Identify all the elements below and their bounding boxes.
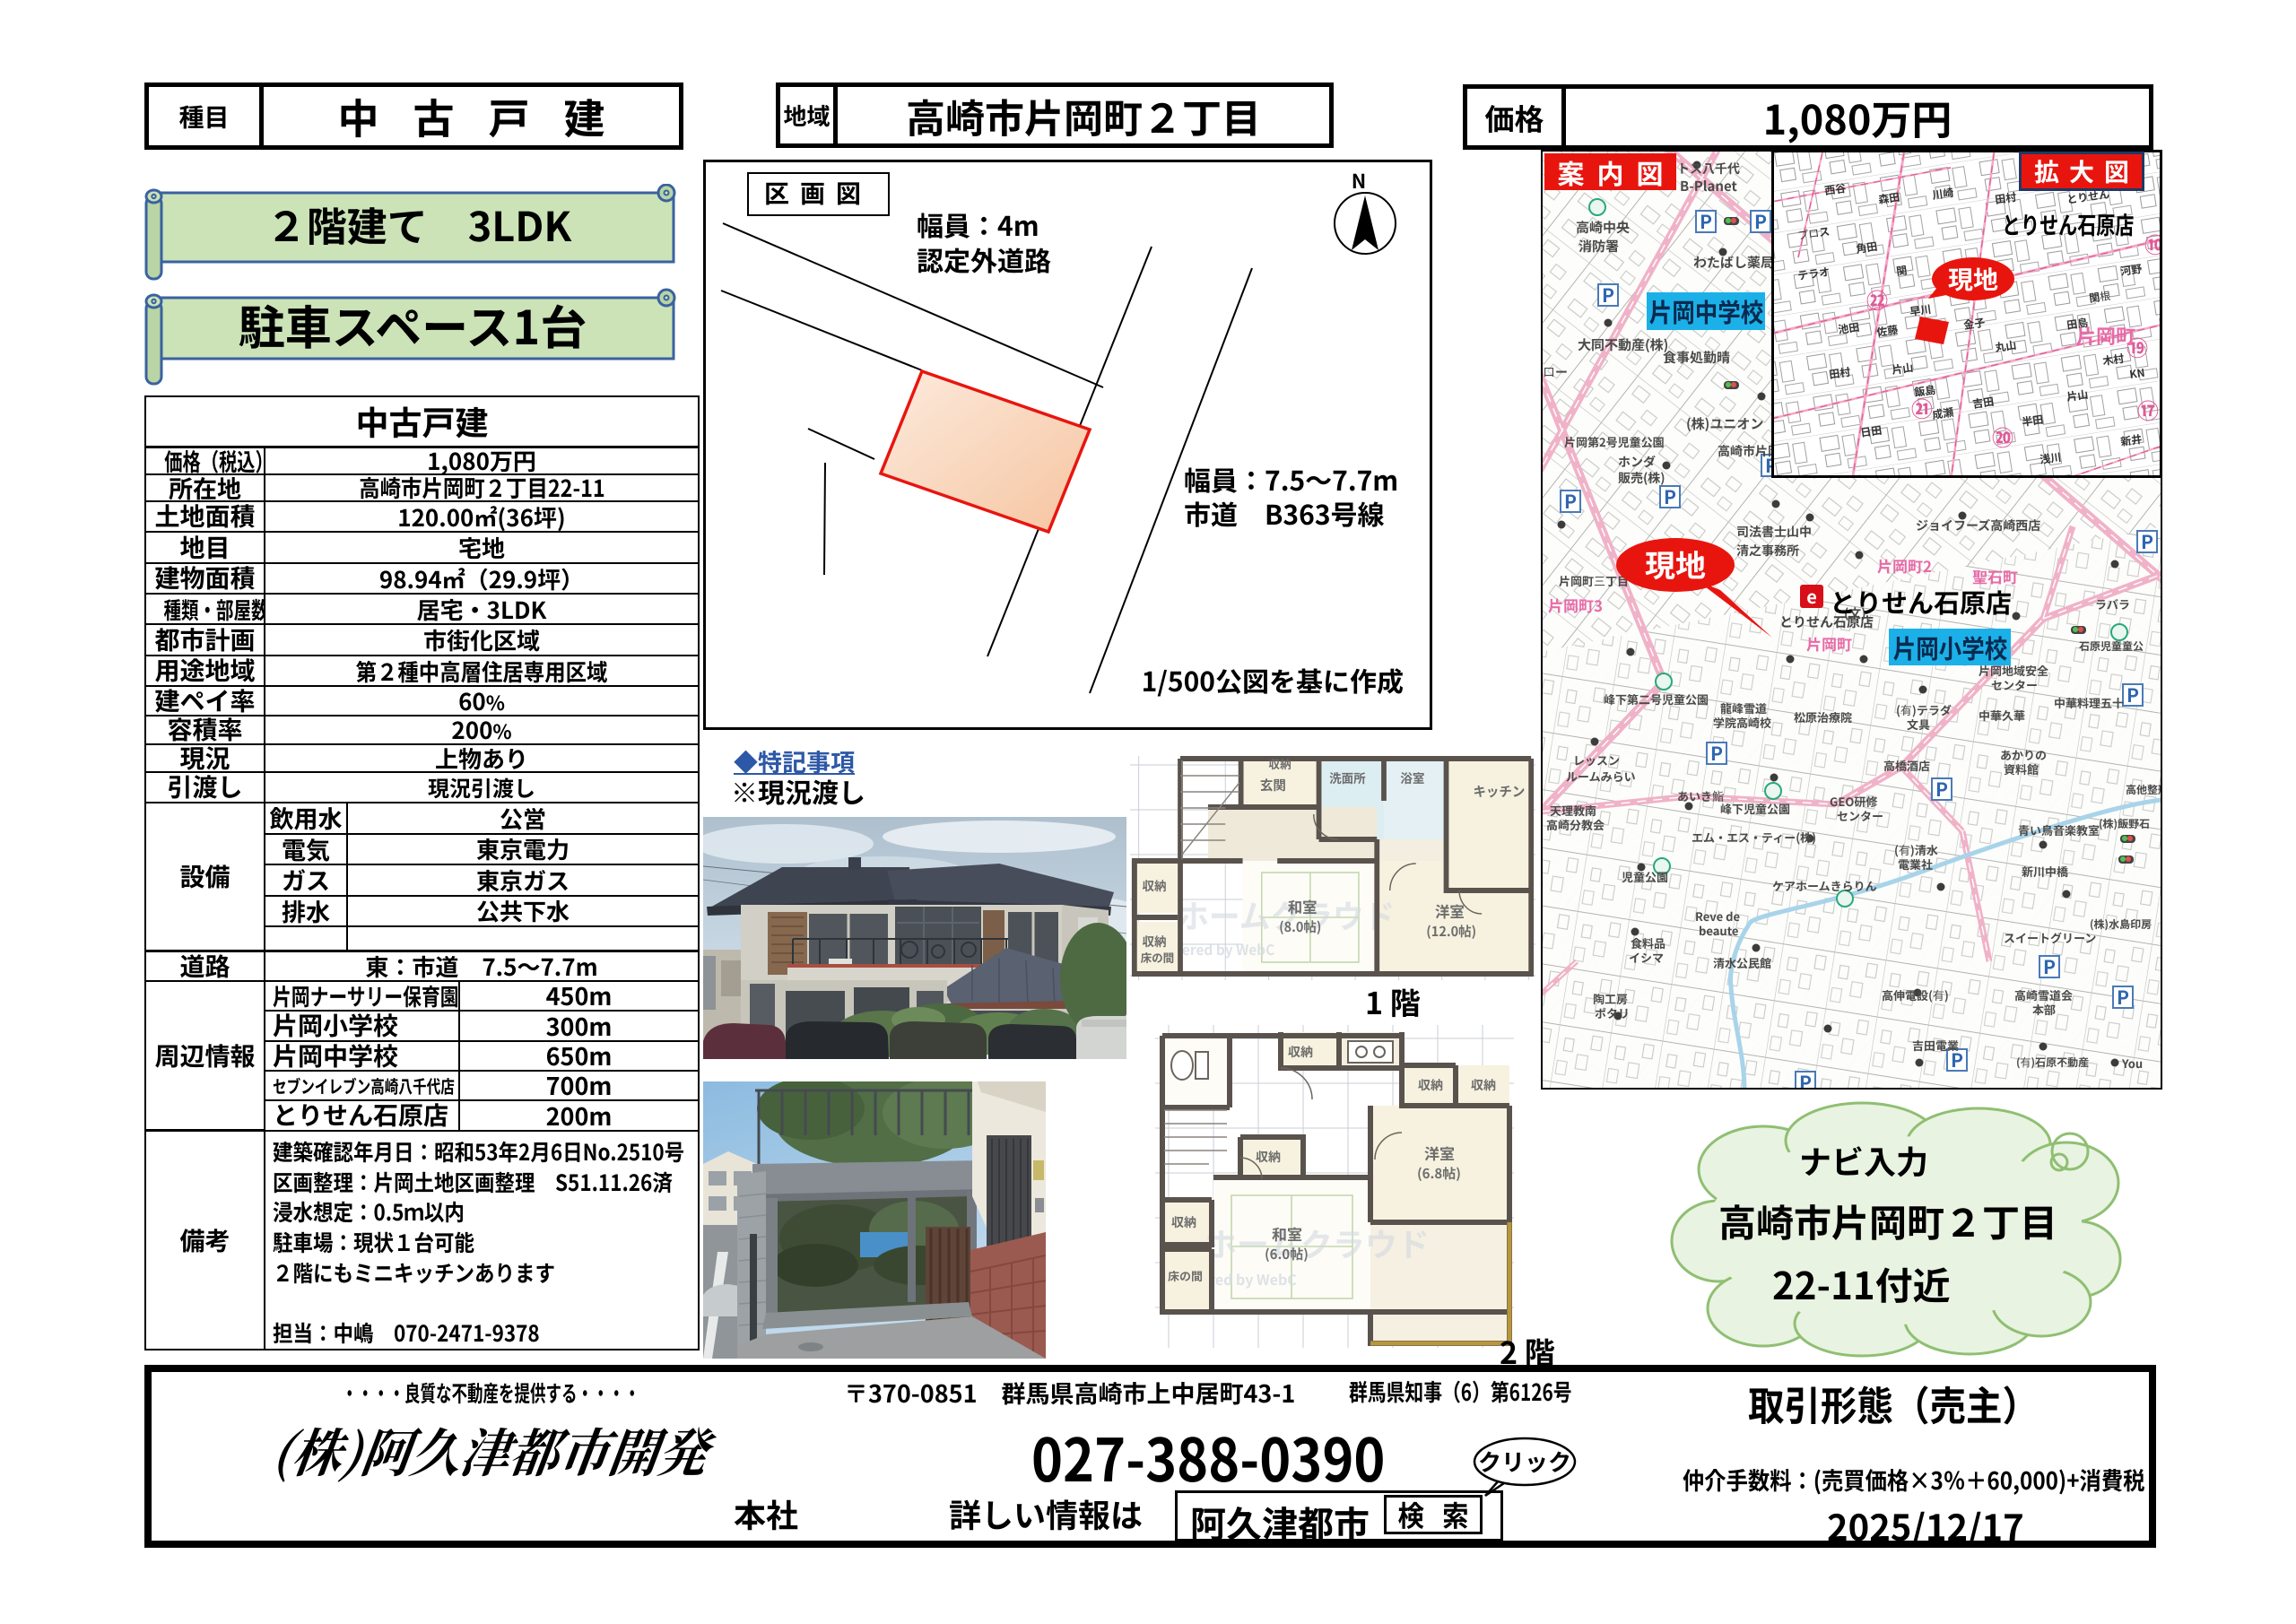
svg-text:片岡町: 片岡町 <box>1806 632 1852 655</box>
svg-text:石原児童童公: 石原児童童公 <box>2079 638 2144 654</box>
svg-text:P: P <box>1799 1069 1812 1090</box>
svg-text:消防署: 消防署 <box>1578 237 1619 256</box>
svg-text:青い鳥音楽教室: 青い鳥音楽教室 <box>2018 821 2100 838</box>
svg-text:和室: 和室 <box>1272 1222 1302 1245</box>
svg-text:松原治療院: 松原治療院 <box>1794 708 1852 725</box>
svg-text:収納: 収納 <box>1269 756 1291 772</box>
svg-text:ジョイフーズ高崎西店: ジョイフーズ高崎西店 <box>1916 517 2040 534</box>
svg-text:ラバラ: ラバラ <box>2095 595 2130 612</box>
svg-text:高崎市片岡町２丁目: 高崎市片岡町２丁目 <box>1718 1194 2057 1248</box>
svg-text:中華久華: 中華久華 <box>1979 707 2025 724</box>
svg-text:電業社: 電業社 <box>1898 855 1933 873</box>
svg-text:(株)飯野石: (株)飯野石 <box>2099 816 2150 831</box>
svg-text:クリック: クリック <box>1478 1445 1571 1478</box>
svg-text:収納: 収納 <box>1288 1043 1313 1061</box>
svg-text:収納: 収納 <box>1418 1076 1443 1094</box>
svg-text:販売(株): 販売(株) <box>1618 469 1665 487</box>
svg-text:(6.8帖): (6.8帖) <box>1417 1164 1461 1183</box>
svg-text:高崎中央: 高崎中央 <box>1576 218 1630 237</box>
svg-text:児童公園: 児童公園 <box>1622 868 1668 885</box>
svg-text:ホンダ: ホンダ <box>1618 453 1656 471</box>
svg-text:食事処勤晴: 食事処勤晴 <box>1663 348 1730 367</box>
svg-text:床の間: 床の間 <box>1141 949 1175 966</box>
svg-text:ロー: ロー <box>1543 363 1568 381</box>
svg-text:ナビ入力: ナビ入力 <box>1799 1137 1928 1184</box>
svg-text:床の間: 床の間 <box>1168 1267 1203 1284</box>
svg-text:ルームみらい: ルームみらい <box>1566 768 1636 785</box>
svg-text:P: P <box>1564 488 1577 515</box>
svg-text:N: N <box>1352 166 1366 195</box>
svg-text:高崎分教会: 高崎分教会 <box>1546 816 1605 833</box>
svg-text:駐車スペース1台: 駐車スペース1台 <box>239 291 587 358</box>
svg-text:収納: 収納 <box>1143 876 1167 894</box>
svg-text:本部: 本部 <box>2032 1001 2056 1018</box>
svg-text:浴室: 浴室 <box>1400 769 1424 786</box>
svg-text:22-11付近: 22-11付近 <box>1772 1256 1951 1311</box>
svg-text:ホームクラウド: ホームクラウド <box>1205 1220 1430 1266</box>
svg-text:レッスン: レッスン <box>1573 751 1620 769</box>
svg-text:中華料理五十: 中華料理五十 <box>2054 694 2124 711</box>
svg-text:収納: 収納 <box>1471 1076 1496 1094</box>
svg-text:現地: 現地 <box>1645 542 1706 586</box>
svg-text:beaute: beaute <box>1699 922 1739 939</box>
svg-text:２階建て 3LDK: ２階建て 3LDK <box>266 195 573 253</box>
svg-text:(株)水島印房: (株)水島印房 <box>2090 916 2152 932</box>
svg-text:ケアホームきらりん: ケアホームきらりん <box>1772 877 1877 894</box>
svg-text:片岡第2号児童公園: 片岡第2号児童公園 <box>1564 433 1665 450</box>
svg-text:高伸電設(有): 高伸電設(有) <box>1882 986 1949 1003</box>
svg-text:幅員：4m: 幅員：4m <box>917 204 1039 244</box>
svg-text:峰下児童公園: 峰下児童公園 <box>1720 800 1790 817</box>
svg-text:P: P <box>2126 682 2139 708</box>
svg-text:新川中橋: 新川中橋 <box>2022 863 2068 880</box>
svg-text:1/500公図を基に作成: 1/500公図を基に作成 <box>1142 660 1404 699</box>
svg-text:洗面所: 洗面所 <box>1329 769 1366 786</box>
svg-text:資料館: 資料館 <box>2004 760 2039 777</box>
svg-text:P: P <box>1700 208 1712 235</box>
svg-text:センター: センター <box>1837 807 1883 824</box>
svg-text:峰下第二号児童公園: 峰下第二号児童公園 <box>1604 690 1709 708</box>
svg-text:高橋酒店: 高橋酒店 <box>1883 757 1930 774</box>
svg-text:文具: 文具 <box>1907 716 1930 733</box>
svg-text:認定外道路: 認定外道路 <box>917 239 1051 279</box>
svg-text:和室: 和室 <box>1288 896 1318 917</box>
svg-text:収納: 収納 <box>1143 932 1167 950</box>
svg-text:ポタリ: ポタリ <box>1595 1004 1630 1021</box>
svg-text:P: P <box>2117 984 2129 1011</box>
svg-text:P: P <box>1602 282 1614 308</box>
svg-text:スイートグリーン: スイートグリーン <box>2004 929 2096 946</box>
svg-text:P: P <box>1935 776 1948 803</box>
svg-text:高他整形: 高他整形 <box>2126 782 2162 797</box>
svg-text:収納: 収納 <box>1171 1213 1196 1231</box>
svg-text:(12.0帖): (12.0帖) <box>1426 922 1476 941</box>
svg-text:イシマ: イシマ <box>1629 949 1664 966</box>
svg-text:清水公民館: 清水公民館 <box>1713 954 1771 971</box>
svg-text:You: You <box>2121 1055 2143 1072</box>
svg-text:P: P <box>1754 208 1767 235</box>
svg-text:吉田電業: 吉田電業 <box>1912 1037 1959 1054</box>
svg-text:P: P <box>1710 740 1723 767</box>
svg-text:エム・エス・ティー(株): エム・エス・ティー(株) <box>1692 829 1816 846</box>
svg-text:洋室: 洋室 <box>1424 1142 1455 1164</box>
svg-text:現地: 現地 <box>1948 261 1998 297</box>
svg-text:red by WebC: red by WebC <box>1209 1268 1297 1290</box>
svg-text:ered by WebC: ered by WebC <box>1182 939 1274 960</box>
svg-text:P: P <box>1664 483 1676 510</box>
svg-text:わたばし薬局: わたばし薬局 <box>1693 253 1774 272</box>
svg-text:P: P <box>2141 528 2153 555</box>
svg-text:キッチン: キッチン <box>1473 782 1525 801</box>
svg-text:学院高崎校: 学院高崎校 <box>1713 714 1771 731</box>
svg-text:玄関: 玄関 <box>1260 776 1286 795</box>
svg-text:あいき鮨: あいき鮨 <box>1677 787 1724 804</box>
svg-text:市道 B363号線: 市道 B363号線 <box>1184 493 1385 533</box>
svg-text:トス八千代: トス八千代 <box>1677 160 1740 178</box>
svg-text:収納: 収納 <box>1256 1148 1281 1166</box>
svg-text:大同不動産(株): 大同不動産(株) <box>1578 335 1668 354</box>
svg-text:B-Planet: B-Planet <box>1680 177 1738 195</box>
svg-text:P: P <box>2043 953 2056 980</box>
svg-text:(有)石原不動産: (有)石原不動産 <box>2016 1055 2089 1070</box>
svg-text:洋室: 洋室 <box>1435 900 1465 922</box>
svg-text:センター: センター <box>1991 676 2038 693</box>
svg-text:区画図: 区画図 <box>764 175 872 211</box>
svg-text:(6.0帖): (6.0帖) <box>1265 1245 1309 1264</box>
svg-text:(8.0帖): (8.0帖) <box>1279 917 1321 936</box>
svg-text:(株)ユニオン: (株)ユニオン <box>1686 414 1763 433</box>
